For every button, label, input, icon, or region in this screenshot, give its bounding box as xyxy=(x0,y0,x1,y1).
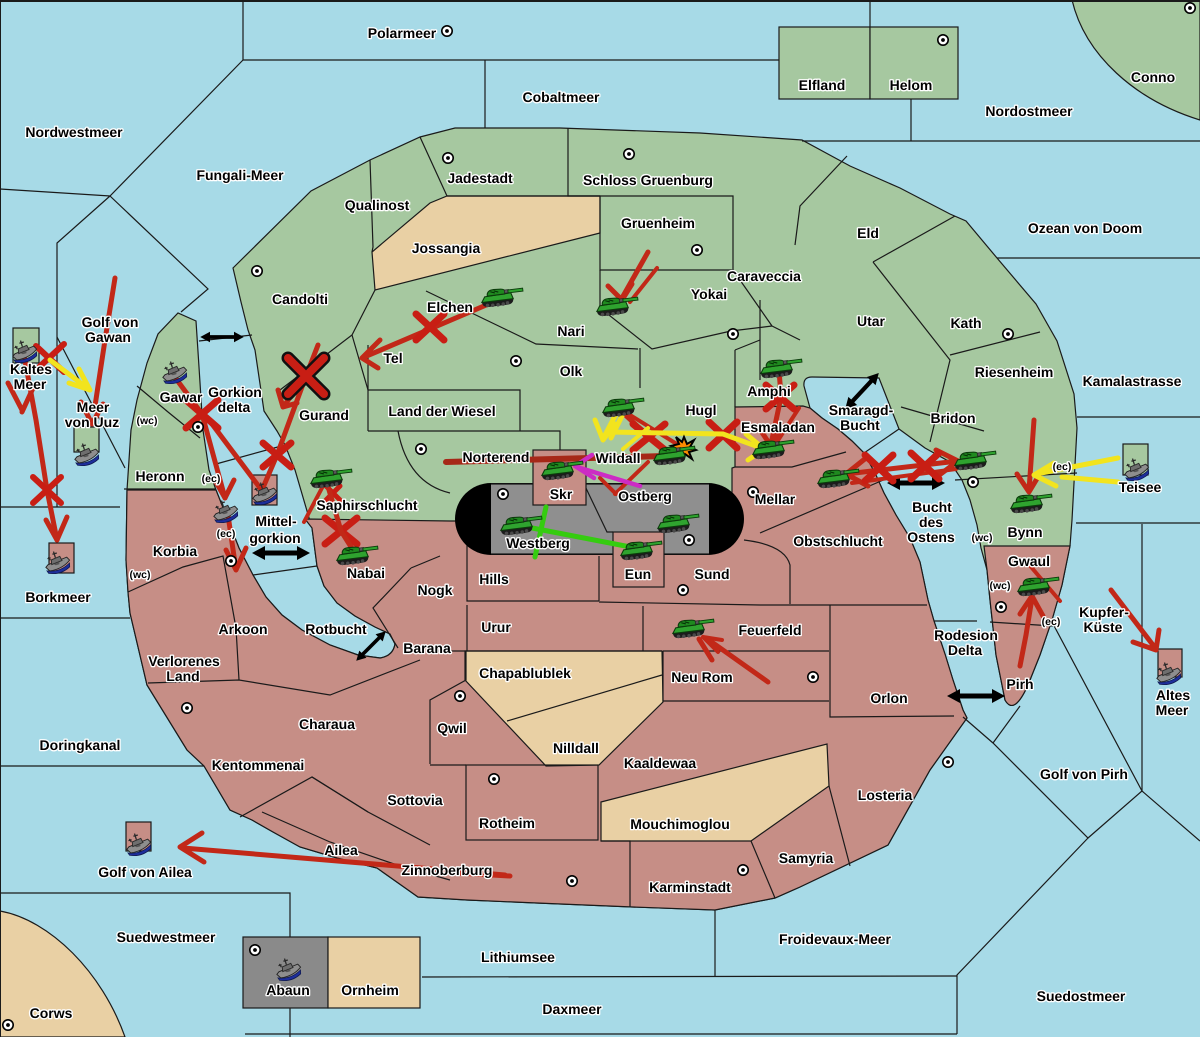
svg-text:Suedostmeer: Suedostmeer xyxy=(1037,988,1126,1004)
svg-text:(wc): (wc) xyxy=(990,580,1011,592)
svg-text:Daxmeer: Daxmeer xyxy=(542,1001,602,1017)
svg-text:Arkoon: Arkoon xyxy=(219,621,268,637)
svg-text:Chapablublek: Chapablublek xyxy=(479,665,571,681)
svg-text:Altes: Altes xyxy=(1156,687,1190,703)
svg-text:Losteria: Losteria xyxy=(858,787,913,803)
svg-text:Delta: Delta xyxy=(948,642,982,658)
svg-text:Golf von Ailea: Golf von Ailea xyxy=(98,864,192,880)
svg-text:Corws: Corws xyxy=(30,1005,73,1021)
svg-text:Rodesion: Rodesion xyxy=(934,627,998,643)
svg-text:Obstschlucht: Obstschlucht xyxy=(793,533,883,549)
svg-text:Mellar: Mellar xyxy=(755,491,796,507)
svg-text:Ostens: Ostens xyxy=(907,529,955,545)
svg-text:Kath: Kath xyxy=(950,315,981,331)
svg-text:Lithiumsee: Lithiumsee xyxy=(481,949,555,965)
svg-text:Sottovia: Sottovia xyxy=(387,792,442,808)
svg-text:Qualinost: Qualinost xyxy=(345,197,410,213)
svg-text:Land: Land xyxy=(166,668,199,684)
svg-text:Wildall: Wildall xyxy=(596,450,641,466)
svg-text:Rotbucht: Rotbucht xyxy=(305,621,367,637)
svg-text:Doringkanal: Doringkanal xyxy=(40,737,121,753)
svg-text:Fungali-Meer: Fungali-Meer xyxy=(196,167,284,183)
svg-text:Rotheim: Rotheim xyxy=(479,815,535,831)
svg-text:(wc): (wc) xyxy=(972,532,993,544)
svg-text:Olk: Olk xyxy=(560,363,583,379)
svg-text:Charaua: Charaua xyxy=(299,716,355,732)
svg-text:Nabai: Nabai xyxy=(347,565,385,581)
svg-text:Norterend: Norterend xyxy=(463,449,530,465)
svg-text:delta: delta xyxy=(218,399,251,415)
svg-text:Golf von: Golf von xyxy=(82,314,139,330)
svg-text:Conno: Conno xyxy=(1131,69,1175,85)
svg-text:Utar: Utar xyxy=(857,313,886,329)
svg-text:Skr: Skr xyxy=(550,486,573,502)
svg-text:Feuerfeld: Feuerfeld xyxy=(738,622,801,638)
svg-text:Neu Rom: Neu Rom xyxy=(671,669,732,685)
svg-text:Bucht: Bucht xyxy=(912,499,952,515)
svg-text:Gwaul: Gwaul xyxy=(1008,553,1050,569)
svg-text:Cobaltmeer: Cobaltmeer xyxy=(522,89,600,105)
svg-text:Candolti: Candolti xyxy=(272,291,328,307)
svg-text:Urur: Urur xyxy=(481,619,511,635)
svg-text:Nari: Nari xyxy=(557,323,584,339)
svg-text:Gurand: Gurand xyxy=(299,407,349,423)
svg-text:Hills: Hills xyxy=(479,571,509,587)
svg-text:(ec): (ec) xyxy=(1042,616,1061,628)
svg-text:(wc): (wc) xyxy=(130,569,151,581)
svg-text:(ec): (ec) xyxy=(217,528,236,540)
svg-text:Heronn: Heronn xyxy=(136,468,185,484)
svg-text:Teisee: Teisee xyxy=(1119,479,1162,495)
svg-text:Jadestadt: Jadestadt xyxy=(447,170,513,186)
svg-text:Abaun: Abaun xyxy=(266,982,310,998)
svg-text:Kentommenai: Kentommenai xyxy=(212,757,305,773)
svg-text:Schloss Gruenburg: Schloss Gruenburg xyxy=(583,172,713,188)
svg-text:Orlon: Orlon xyxy=(870,690,907,706)
svg-text:Golf von Pirh: Golf von Pirh xyxy=(1040,766,1128,782)
svg-text:Eun: Eun xyxy=(625,566,651,582)
svg-text:Amphi: Amphi xyxy=(747,383,791,399)
svg-text:Riesenheim: Riesenheim xyxy=(975,364,1054,380)
svg-text:Elfland: Elfland xyxy=(799,77,846,93)
svg-text:Westberg: Westberg xyxy=(506,535,570,551)
svg-text:Samyria: Samyria xyxy=(779,850,834,866)
svg-text:Nordwestmeer: Nordwestmeer xyxy=(25,124,123,140)
svg-text:Yokai: Yokai xyxy=(691,286,727,302)
svg-text:Saphirschlucht: Saphirschlucht xyxy=(316,497,417,513)
svg-text:Gawan: Gawan xyxy=(85,329,131,345)
svg-text:Kaaldewaa: Kaaldewaa xyxy=(624,755,697,771)
svg-text:Land der Wiesel: Land der Wiesel xyxy=(388,403,495,419)
svg-text:Küste: Küste xyxy=(1084,619,1123,635)
svg-text:(wc): (wc) xyxy=(137,415,158,427)
svg-text:Sund: Sund xyxy=(695,566,730,582)
svg-text:Ostberg: Ostberg xyxy=(618,488,672,504)
svg-text:Eld: Eld xyxy=(857,225,879,241)
svg-text:Esmaladan: Esmaladan xyxy=(741,419,815,435)
svg-text:Qwil: Qwil xyxy=(437,720,467,736)
svg-text:Borkmeer: Borkmeer xyxy=(25,589,91,605)
svg-text:Bridon: Bridon xyxy=(930,410,975,426)
svg-text:Nilldall: Nilldall xyxy=(553,740,599,756)
svg-text:Kamalastrasse: Kamalastrasse xyxy=(1083,373,1182,389)
svg-text:Mouchimoglou: Mouchimoglou xyxy=(630,816,730,832)
svg-text:Meer: Meer xyxy=(77,399,110,415)
svg-text:Pirh: Pirh xyxy=(1006,676,1033,692)
svg-text:Barana: Barana xyxy=(403,640,451,656)
svg-text:Nordostmeer: Nordostmeer xyxy=(985,103,1073,119)
svg-text:Nogk: Nogk xyxy=(418,582,453,598)
svg-text:Bucht: Bucht xyxy=(840,417,880,433)
svg-text:Karminstadt: Karminstadt xyxy=(649,879,731,895)
svg-text:Tel: Tel xyxy=(383,350,402,366)
svg-text:gorkion: gorkion xyxy=(249,530,300,546)
svg-text:(ec): (ec) xyxy=(1053,461,1072,473)
svg-text:Ailea: Ailea xyxy=(324,842,358,858)
svg-text:Bynn: Bynn xyxy=(1008,524,1043,540)
svg-text:von Uuz: von Uuz xyxy=(65,414,119,430)
svg-text:Jossangia: Jossangia xyxy=(412,240,481,256)
svg-text:Hugl: Hugl xyxy=(685,402,716,418)
svg-text:Froidevaux-Meer: Froidevaux-Meer xyxy=(779,931,892,947)
svg-text:Polarmeer: Polarmeer xyxy=(368,25,437,41)
svg-text:Zinnoberburg: Zinnoberburg xyxy=(402,862,493,878)
svg-text:Gorkion: Gorkion xyxy=(208,384,262,400)
svg-text:Gawar: Gawar xyxy=(160,389,203,405)
svg-text:Kupfer-: Kupfer- xyxy=(1079,604,1129,620)
svg-text:Smaragd-: Smaragd- xyxy=(829,402,894,418)
svg-text:Helom: Helom xyxy=(890,77,933,93)
svg-text:Kaltes: Kaltes xyxy=(10,361,52,377)
svg-text:Elchen: Elchen xyxy=(427,299,473,315)
svg-text:des: des xyxy=(919,514,943,530)
svg-text:Korbia: Korbia xyxy=(153,543,198,559)
svg-text:Meer: Meer xyxy=(14,376,47,392)
svg-text:Ornheim: Ornheim xyxy=(341,982,399,998)
svg-text:Verlorenes: Verlorenes xyxy=(148,653,220,669)
svg-text:Mittel-: Mittel- xyxy=(255,513,297,529)
svg-text:Ozean von Doom: Ozean von Doom xyxy=(1028,220,1142,236)
svg-text:Caraveccia: Caraveccia xyxy=(727,268,801,284)
svg-text:Gruenheim: Gruenheim xyxy=(621,215,695,231)
svg-text:Suedwestmeer: Suedwestmeer xyxy=(117,929,216,945)
svg-text:(ec): (ec) xyxy=(202,473,221,485)
svg-text:Meer: Meer xyxy=(1156,702,1189,718)
